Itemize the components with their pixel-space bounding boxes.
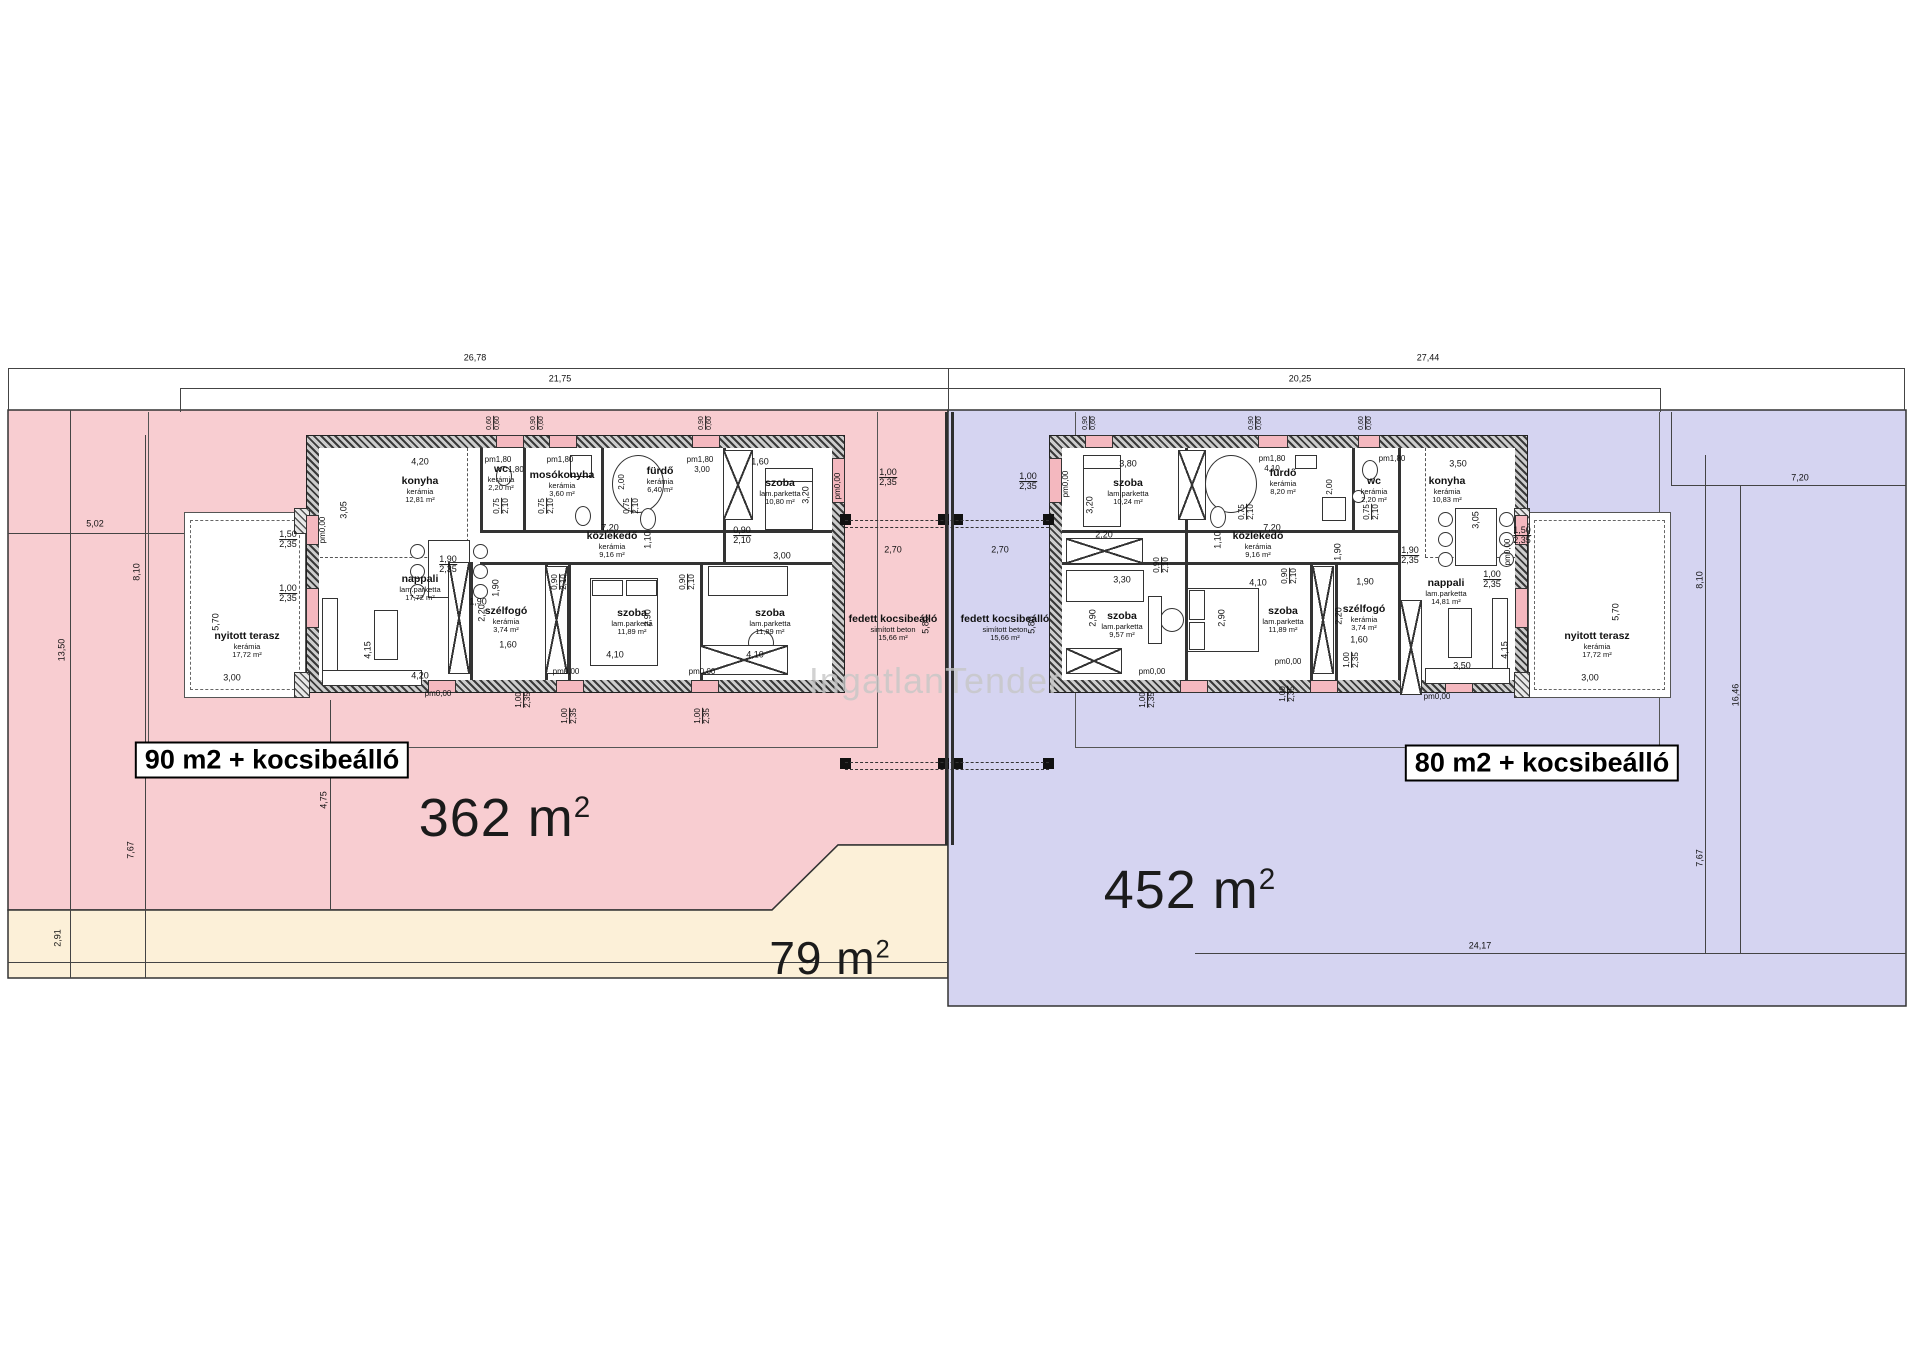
- dimension-label: 8,10: [132, 563, 141, 581]
- dimension-label: 1,902,35: [439, 555, 457, 575]
- dimension-label: 0,900,60: [1082, 416, 1098, 430]
- furniture-rect: [626, 580, 657, 596]
- dimension-label: 1,60: [1350, 635, 1368, 644]
- dim-line: [1705, 455, 1706, 953]
- room-area: 3,74 m²: [1343, 624, 1386, 632]
- room-area: 9,16 m²: [587, 551, 638, 559]
- dim-value: 1,00: [1019, 471, 1037, 481]
- dimension-label: 1,90: [1333, 543, 1342, 561]
- window-opening: [496, 435, 524, 448]
- dimension-label: 1,902,35: [1401, 546, 1419, 566]
- dimension-label: 3,50: [1449, 459, 1467, 468]
- dimension-label: 7,67: [1695, 849, 1704, 867]
- dim-value: 2,10: [560, 574, 569, 590]
- dimension-label: 4,15: [363, 641, 372, 659]
- dimension-label: 0,600,60: [1358, 416, 1374, 430]
- furniture-rect: [1322, 497, 1346, 521]
- dim-value: 0,75: [492, 498, 501, 514]
- dimension-label: 0,752,10: [1363, 504, 1381, 520]
- furniture-round: [473, 544, 488, 559]
- dimension-label: 0,900,60: [1248, 416, 1264, 430]
- dim-value: 0,60: [1256, 416, 1264, 430]
- dimension-label: 7,20: [601, 523, 619, 532]
- dimension-label: 0,902,10: [679, 574, 697, 590]
- dim-value: 2,10: [1247, 504, 1256, 520]
- lot-boundary-line: [951, 412, 954, 845]
- room-label: nyitott teraszkerámia17,72 m²: [214, 631, 279, 659]
- dimension-label: 3,80: [1119, 459, 1137, 468]
- dim-line: [1740, 485, 1741, 953]
- dim-line: [1195, 953, 1906, 954]
- room-name: konyha: [402, 476, 439, 488]
- dimension-label: 1,502,35: [279, 530, 297, 550]
- room-area: 15,66 m²: [849, 634, 938, 642]
- room-name: szoba: [1262, 606, 1303, 618]
- dimension-label: 0,752,10: [493, 498, 511, 514]
- dimension-label: 2,20: [477, 604, 486, 622]
- dim-value: 2,10: [1372, 504, 1381, 520]
- dimension-label: 0,902,10: [1153, 557, 1171, 573]
- wardrobe-unit: [1066, 538, 1143, 564]
- room-label: közlekedőkerámia9,16 m²: [1233, 531, 1284, 559]
- dim-line: [8, 368, 9, 410]
- watermark: IngatlanTender: [809, 660, 1061, 702]
- room-label: wckerámia2,20 m²: [1361, 476, 1388, 504]
- room-name: szoba: [759, 478, 800, 490]
- dim-value: 1,90: [439, 554, 457, 564]
- dim-value: 0,90: [1280, 568, 1289, 584]
- dimension-label: 2,00: [1326, 479, 1334, 495]
- room-area: 10,83 m²: [1429, 496, 1466, 504]
- dimension-label: 1,90: [491, 579, 500, 597]
- lot-area-label: 362 m2: [419, 787, 592, 849]
- partition-wall: [523, 448, 526, 530]
- dim-value: 0,90: [1248, 416, 1255, 430]
- furniture-rect: [374, 610, 398, 660]
- dimension-label: 5,70: [211, 613, 220, 631]
- dim-value: 2,35: [524, 692, 533, 708]
- dimension-label: 1,002,35: [694, 708, 712, 724]
- furniture-rect: [322, 670, 422, 686]
- furniture-round: [1499, 512, 1514, 527]
- dim-value: 1,90: [1401, 545, 1419, 555]
- room-name: fürdő: [647, 466, 674, 478]
- dim-value: 2,35: [1401, 556, 1419, 566]
- dim-value: 2,10: [688, 574, 697, 590]
- room-name: szélfogó: [485, 606, 528, 618]
- dimension-label: pm0,00: [1504, 539, 1512, 566]
- terrace-dashed-edge: [1534, 520, 1665, 690]
- dimension-label: 4,20: [411, 671, 429, 680]
- dimension-label: 1,002,35: [279, 584, 297, 604]
- dimension-label: 0,902,10: [551, 574, 569, 590]
- dim-value: 2,10: [733, 536, 751, 546]
- dim-value: 0,60: [486, 416, 493, 430]
- room-label: szobalam.parketta10,80 m²: [759, 478, 800, 506]
- dim-value: 0,75: [622, 498, 631, 514]
- dimension-label: 2,70: [991, 545, 1009, 554]
- furniture-rect: [1492, 598, 1508, 678]
- dimension-label: 1,80: [508, 466, 524, 474]
- dim-line: [1904, 368, 1905, 410]
- dim-value: 0,90: [1152, 557, 1161, 573]
- dimension-label: pm0,00: [1275, 658, 1302, 666]
- area-value: 452 m: [1104, 860, 1259, 920]
- dimension-label: 13,50: [57, 639, 66, 662]
- wardrobe-unit: [1178, 450, 1206, 520]
- room-name: konyha: [1429, 476, 1466, 488]
- lot-boundary-line: [945, 412, 948, 845]
- dim-line: [8, 368, 1904, 369]
- house-size-label: 90 m2 + kocsibeálló: [135, 742, 409, 779]
- furniture-rect: [1295, 455, 1317, 469]
- partition-wall: [480, 562, 832, 565]
- dim-value: 2,35: [570, 708, 579, 724]
- dim-value: 1,50: [279, 529, 297, 539]
- dim-value: 0,90: [1082, 416, 1089, 430]
- dim-line: [145, 435, 146, 978]
- dimension-label: 1,10: [643, 531, 652, 549]
- dimension-label: 3,05: [339, 501, 348, 519]
- dimension-label: 2,70: [884, 545, 902, 554]
- dim-value: 0,75: [1362, 504, 1371, 520]
- window-opening: [1085, 435, 1113, 448]
- room-area: 15,66 m²: [961, 634, 1050, 642]
- dimension-label: 7,67: [126, 841, 135, 859]
- dimension-label: 3,20: [801, 486, 810, 504]
- dimension-label: 16,46: [1731, 684, 1740, 707]
- window-opening: [549, 435, 577, 448]
- room-area: 10,24 m²: [1107, 498, 1148, 506]
- dim-value: 2,10: [547, 498, 556, 514]
- dimension-label: pm0,00: [834, 473, 842, 500]
- dimension-label: 1,002,35: [1139, 692, 1157, 708]
- room-label: szélfogókerámia3,74 m²: [1343, 604, 1386, 632]
- dimension-label: pm1,80: [687, 456, 714, 464]
- dim-value: 1,50: [1513, 525, 1531, 535]
- room-label: nappalilam.parketta14,81 m²: [1425, 578, 1466, 606]
- dimension-label: 26,78: [464, 353, 487, 362]
- dimension-label: 3,00: [1581, 673, 1599, 682]
- furniture-rect: [1448, 608, 1472, 658]
- partition-wall: [480, 530, 832, 533]
- wall-pillar: [1514, 672, 1530, 698]
- area-value: 79 m: [769, 932, 875, 984]
- window-opening: [306, 588, 319, 628]
- dim-value: 2,10: [1290, 568, 1299, 584]
- dimension-label: 4,10: [1264, 465, 1280, 473]
- room-label: mosókonyhakerámia3,60 m²: [530, 470, 595, 498]
- carport-post: [1043, 758, 1054, 769]
- furniture-round: [410, 544, 425, 559]
- dim-value: 2,35: [1148, 692, 1157, 708]
- dimension-label: 5,02: [86, 519, 104, 528]
- dimension-label: 1,90: [1356, 577, 1374, 586]
- furniture-rect: [1066, 570, 1144, 602]
- dimension-label: 1,502,35: [1513, 526, 1531, 546]
- room-label: konyhakerámia10,83 m²: [1429, 476, 1466, 504]
- dimension-label: 1,002,35: [1483, 570, 1501, 590]
- furniture-round: [1438, 552, 1453, 567]
- dim-value: 0,90: [733, 525, 751, 535]
- partition-wall: [480, 448, 483, 530]
- room-label: szobalam.parketta10,24 m²: [1107, 478, 1148, 506]
- dim-value: 0,60: [538, 416, 546, 430]
- dimension-label: 0,752,10: [538, 498, 556, 514]
- room-label: nappalilam.parketta17,72 m²: [399, 574, 440, 602]
- dimension-label: 2,90: [643, 609, 652, 627]
- dimension-label: 3,05: [1471, 511, 1480, 529]
- dim-value: 0,60: [1358, 416, 1365, 430]
- dimension-label: 3,00: [694, 466, 710, 474]
- dimension-label: 1,60: [499, 640, 517, 649]
- dimension-label: 1,60: [751, 457, 769, 466]
- dim-value: 2,10: [502, 498, 511, 514]
- furniture-rect: [592, 580, 623, 596]
- dimension-label: pm1,80: [1379, 455, 1406, 463]
- dim-line: [180, 388, 181, 412]
- dim-value: 1,00: [279, 583, 297, 593]
- dim-line: [948, 368, 949, 412]
- dimension-label: 2,90: [1217, 609, 1226, 627]
- dimension-label: pm0,00: [425, 690, 452, 698]
- wardrobe-unit: [723, 450, 753, 520]
- wardrobe-unit: [448, 562, 470, 674]
- wardrobe-unit: [1066, 648, 1122, 674]
- room-area: 10,80 m²: [759, 498, 800, 506]
- dim-value: 0,90: [678, 574, 687, 590]
- dim-line: [70, 410, 71, 978]
- dim-value: 2,10: [632, 498, 641, 514]
- dimension-label: 5,80: [921, 616, 930, 634]
- dim-value: 0,90: [550, 574, 559, 590]
- dimension-label: 2,00: [618, 474, 626, 490]
- furniture-round: [1438, 532, 1453, 547]
- room-name: wc: [1361, 476, 1388, 488]
- wardrobe-unit: [1312, 566, 1334, 674]
- dim-value: 2,35: [1352, 652, 1361, 668]
- dimension-label: pm0,00: [319, 517, 327, 544]
- dim-value: 1,00: [693, 708, 702, 724]
- room-area: 2,20 m²: [1361, 496, 1388, 504]
- dimension-label: 1,002,35: [1343, 652, 1361, 668]
- dimension-label: 7,20: [1791, 473, 1809, 482]
- dimension-label: pm0,00: [1139, 668, 1166, 676]
- window-opening: [556, 680, 584, 693]
- dim-value: 2,35: [279, 540, 297, 550]
- room-name: nyitott terasz: [1564, 631, 1629, 643]
- room-name: szoba: [1107, 478, 1148, 490]
- room-area: 3,60 m²: [530, 490, 595, 498]
- dim-value: 2,35: [1019, 482, 1037, 492]
- furniture-rect: [1189, 590, 1205, 620]
- room-area: 6,40 m²: [647, 486, 674, 494]
- room-label: közlekedőkerámia9,16 m²: [587, 531, 638, 559]
- dim-value: 2,35: [1483, 580, 1501, 590]
- dimension-label: 4,10: [746, 650, 764, 659]
- dimension-label: 0,752,10: [623, 498, 641, 514]
- room-name: szoba: [749, 608, 790, 620]
- dimension-label: 4,20: [411, 457, 429, 466]
- furniture-round: [1210, 506, 1226, 528]
- dimension-label: 1,002,35: [561, 708, 579, 724]
- dim-value: 2,35: [439, 565, 457, 575]
- room-name: nyitott terasz: [214, 631, 279, 643]
- window-opening: [1310, 680, 1338, 693]
- dimension-label: 3,00: [773, 551, 791, 560]
- room-area: 2,20 m²: [488, 484, 515, 492]
- room-area: 9,16 m²: [1233, 551, 1284, 559]
- dim-value: 1,00: [1483, 569, 1501, 579]
- room-area: 17,72 m²: [399, 594, 440, 602]
- dimension-label: 27,44: [1417, 353, 1440, 362]
- furniture-round: [473, 564, 488, 579]
- dimension-label: 2,20: [1334, 607, 1343, 625]
- furniture-round: [1160, 608, 1184, 632]
- window-opening: [1258, 435, 1288, 448]
- room-label: szobalam.parketta11,89 m²: [1262, 606, 1303, 634]
- dimension-label: 4,15: [1500, 641, 1509, 659]
- dimension-label: 1,002,35: [879, 468, 897, 488]
- dim-value: 2,35: [1288, 686, 1297, 702]
- partition-wall: [601, 448, 604, 530]
- room-area: 11,89 m²: [749, 628, 790, 636]
- room-area: 11,89 m²: [1262, 626, 1303, 634]
- dimension-label: 3,50: [1453, 661, 1471, 670]
- dimension-label: pm0,00: [1062, 471, 1070, 498]
- room-label: szobalam.parketta11,89 m²: [749, 608, 790, 636]
- dim-line: [948, 388, 1660, 389]
- room-area: 3,74 m²: [485, 626, 528, 634]
- dimension-label: 0,900,60: [530, 416, 546, 430]
- dimension-label: 2,90: [1088, 609, 1097, 627]
- dim-line: [1671, 485, 1906, 486]
- dim-value: 0,60: [1090, 416, 1098, 430]
- furniture-rect: [708, 566, 788, 596]
- dimension-label: 4,10: [606, 650, 624, 659]
- room-label: szélfogókerámia3,74 m²: [485, 606, 528, 634]
- furniture-round: [1438, 512, 1453, 527]
- dimension-label: pm0,00: [689, 668, 716, 676]
- dimension-label: 5,70: [1611, 603, 1620, 621]
- dim-value: 2,35: [279, 594, 297, 604]
- dimension-label: pm0,00: [553, 668, 580, 676]
- open-boundary: [1425, 448, 1426, 557]
- room-area: 17,72 m²: [214, 651, 279, 659]
- dim-value: 1,00: [879, 467, 897, 477]
- window-opening: [1515, 588, 1528, 628]
- dimension-label: 7,20: [1263, 523, 1281, 532]
- room-area: 9,57 m²: [1101, 631, 1142, 639]
- dimension-label: 0,600,60: [486, 416, 502, 430]
- room-name: nappali: [1425, 578, 1466, 590]
- partition-wall: [470, 562, 473, 680]
- dim-value: 1,00: [560, 708, 569, 724]
- room-name: szélfogó: [1343, 604, 1386, 616]
- room-area: 8,20 m²: [1270, 488, 1297, 496]
- room-label: nyitott teraszkerámia17,72 m²: [1564, 631, 1629, 659]
- room-area: 14,81 m²: [1425, 598, 1466, 606]
- furniture-rect: [1148, 596, 1162, 644]
- dimension-label: 4,10: [1249, 578, 1267, 587]
- window-opening: [692, 435, 720, 448]
- dimension-label: 0,902,10: [1281, 568, 1299, 584]
- carport-post: [840, 758, 851, 769]
- dimension-label: 2,91: [53, 929, 62, 947]
- site-plan-canvas: konyhakerámia12,81 m²wckerámia2,20 m²mos…: [0, 0, 1920, 1358]
- dimension-label: 5,80: [1027, 616, 1036, 634]
- dim-value: 0,60: [494, 416, 502, 430]
- area-unit-sup: 2: [876, 936, 891, 964]
- wall-pillar: [294, 672, 310, 698]
- dim-value: 1,00: [1138, 692, 1147, 708]
- room-name: szoba: [1101, 611, 1142, 623]
- dim-line: [1660, 388, 1661, 412]
- dimension-label: 3,20: [1085, 496, 1094, 514]
- dim-value: 0,90: [530, 416, 537, 430]
- furniture-round: [640, 508, 656, 530]
- window-opening: [1180, 680, 1208, 693]
- wardrobe-unit: [1400, 600, 1422, 695]
- area-value: 362 m: [419, 788, 574, 848]
- dimension-label: 0,902,10: [733, 526, 751, 546]
- furniture-rect: [1189, 622, 1205, 650]
- dim-value: 1,00: [1342, 652, 1351, 668]
- furniture-round: [575, 506, 591, 526]
- dimension-label: 8,10: [1695, 571, 1704, 589]
- dimension-label: 1,002,35: [1019, 472, 1037, 492]
- dimension-label: 1,002,35: [515, 692, 533, 708]
- dim-value: 0,75: [537, 498, 546, 514]
- dimension-label: pm0,00: [1424, 693, 1451, 701]
- window-opening: [1358, 435, 1380, 448]
- dimension-label: pm1,80: [547, 456, 574, 464]
- dimension-label: 0,900,60: [698, 416, 714, 430]
- lot-area-label: 452 m2: [1104, 859, 1277, 921]
- window-opening: [691, 680, 719, 693]
- dim-value: 0,75: [1237, 504, 1246, 520]
- dim-value: 2,35: [703, 708, 712, 724]
- house-size-label: 80 m2 + kocsibeálló: [1405, 745, 1679, 782]
- area-unit-sup: 2: [1259, 863, 1277, 896]
- dimension-label: pm1,80: [1259, 455, 1286, 463]
- dim-value: 0,90: [698, 416, 705, 430]
- lot-area-label: 79 m2: [769, 931, 890, 985]
- room-area: 17,72 m²: [1564, 651, 1629, 659]
- room-label: fürdőkerámia6,40 m²: [647, 466, 674, 494]
- dimension-label: 3,00: [223, 673, 241, 682]
- dimension-label: pm1,80: [485, 456, 512, 464]
- partition-wall: [1352, 448, 1355, 530]
- dimension-label: 24,17: [1469, 941, 1492, 950]
- dim-line: [180, 388, 948, 389]
- area-unit-sup: 2: [574, 791, 592, 824]
- room-area: 11,89 m²: [611, 628, 652, 636]
- furniture-rect: [1083, 455, 1121, 469]
- dim-value: 2,35: [1513, 536, 1531, 546]
- dimension-label: 21,75: [549, 374, 572, 383]
- dimension-label: 1,002,35: [1279, 686, 1297, 702]
- dim-value: 0,60: [1366, 416, 1374, 430]
- dimension-label: 0,752,10: [1238, 504, 1256, 520]
- room-name: mosókonyha: [530, 470, 595, 482]
- dim-value: 2,35: [879, 478, 897, 488]
- room-label: konyhakerámia12,81 m²: [402, 476, 439, 504]
- dimension-label: 4,75: [319, 791, 328, 809]
- dimension-label: 1,10: [1213, 531, 1222, 549]
- dimension-label: 3,30: [1113, 575, 1131, 584]
- room-label: szobalam.parketta9,57 m²: [1101, 611, 1142, 639]
